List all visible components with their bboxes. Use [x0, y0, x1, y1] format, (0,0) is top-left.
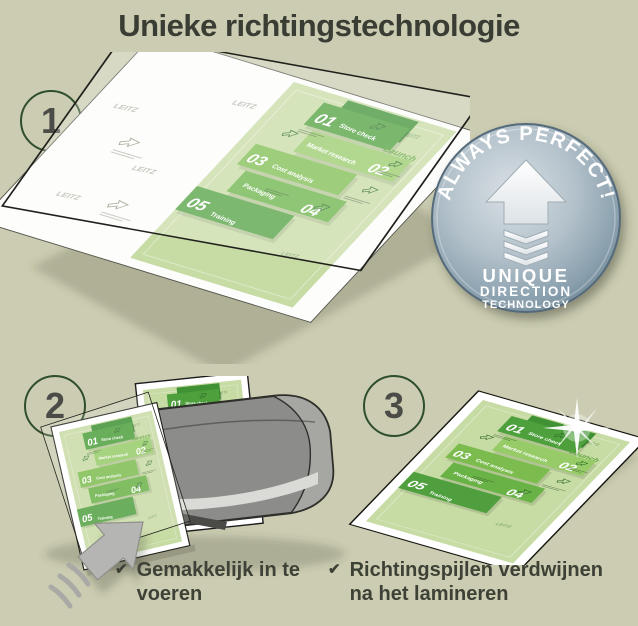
arrow-chevron-stripes [51, 565, 88, 606]
check-icon: ✔ [328, 561, 341, 579]
badge-line-3: TECHNOLOGY [482, 299, 570, 311]
badge-caption: UNIQUE DIRECTION TECHNOLOGY [480, 265, 572, 311]
checklist-item-text: Richtingspijlen verdwijnen na het lamine… [350, 558, 623, 607]
checklist-item-easy-feed: ✔ Gemakkelijk in te voeren [115, 558, 300, 607]
badge-line-1: UNIQUE [483, 265, 570, 286]
infographic-page: Unieke richtingstechnologie 1 2 3 LEITZ … [0, 0, 638, 626]
checklist-item-text: Gemakkelijk in te voeren [137, 558, 300, 607]
checklist-item-arrows-disappear: ✔ Richtingspijlen verdwijnen na het lami… [328, 558, 623, 607]
check-icon: ✔ [115, 561, 128, 579]
always-perfect-badge: ALWAYS PERFECT! UNIQUE DIRECTION TECHNOL… [416, 118, 638, 328]
laminated-document [350, 391, 638, 565]
step1-pouch-illustration: LEITZ LEITZ LEITZ LEITZ 01 Store check M… [0, 52, 470, 364]
badge-line-2: DIRECTION [480, 284, 572, 299]
page-title: Unieke richtingstechnologie [0, 8, 638, 44]
step3-laminated-illustration [345, 390, 638, 565]
